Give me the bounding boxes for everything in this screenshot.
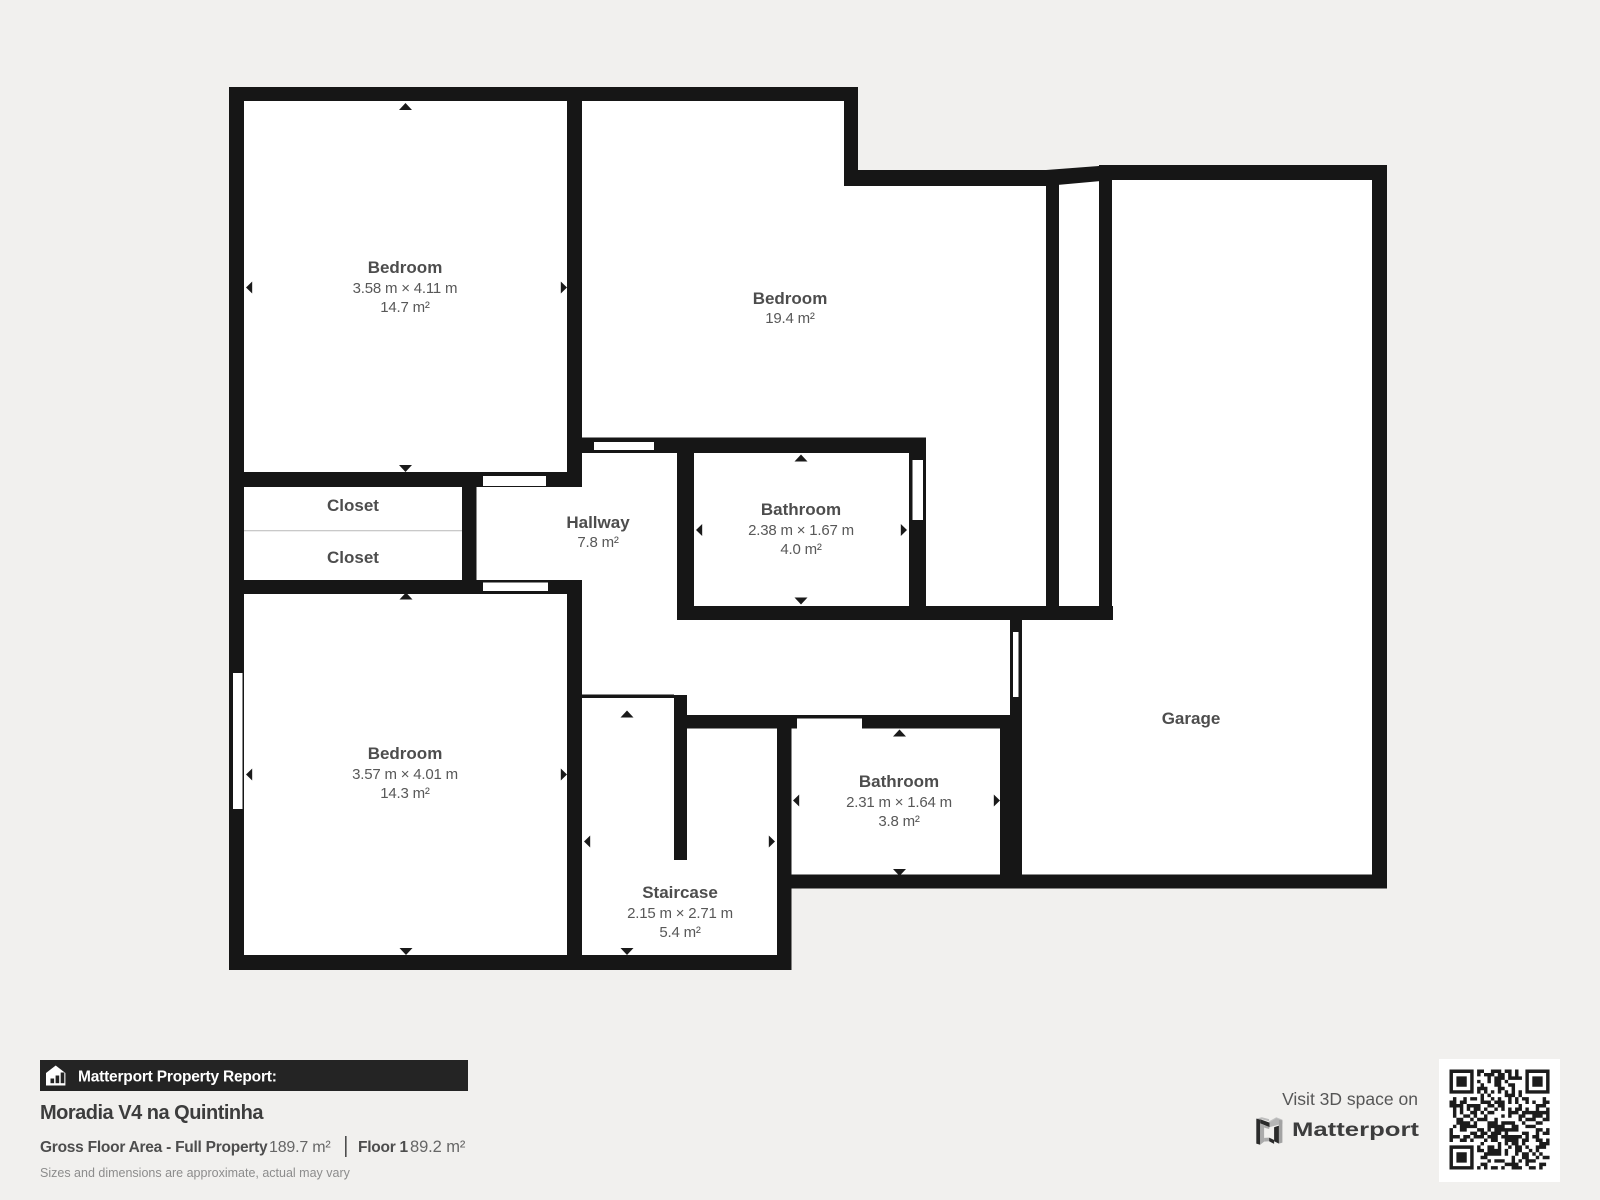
svg-text:4.0 m²: 4.0 m² — [780, 541, 822, 558]
svg-text:Matterport Property Report:: Matterport Property Report: — [78, 1069, 277, 1086]
svg-text:Bedroom: Bedroom — [368, 744, 443, 763]
svg-text:Hallway: Hallway — [566, 513, 630, 532]
svg-text:189.7 m²: 189.7 m² — [269, 1139, 331, 1156]
svg-text:Moradia V4 na Quintinha: Moradia V4 na Quintinha — [40, 1102, 264, 1124]
svg-text:Visit 3D space on: Visit 3D space on — [1282, 1089, 1418, 1109]
svg-text:2.31 m × 1.64 m: 2.31 m × 1.64 m — [846, 794, 952, 811]
svg-text:Gross Floor Area - Full Proper: Gross Floor Area - Full Property — [40, 1139, 268, 1156]
svg-text:Garage: Garage — [1162, 709, 1221, 728]
svg-text:Matterport: Matterport — [1292, 1119, 1420, 1141]
svg-text:Bathroom: Bathroom — [859, 772, 939, 791]
svg-text:Bedroom: Bedroom — [753, 289, 828, 308]
svg-text:3.57 m × 4.01 m: 3.57 m × 4.01 m — [352, 766, 458, 783]
svg-text:89.2 m²: 89.2 m² — [410, 1138, 466, 1156]
svg-text:Closet: Closet — [327, 496, 379, 515]
svg-text:Closet: Closet — [327, 548, 379, 567]
svg-text:14.3 m²: 14.3 m² — [380, 785, 430, 802]
svg-text:3.58 m × 4.11 m: 3.58 m × 4.11 m — [353, 280, 458, 297]
svg-text:Staircase: Staircase — [642, 883, 718, 902]
svg-text:7.8 m²: 7.8 m² — [577, 534, 619, 551]
svg-text:Floor 1: Floor 1 — [358, 1139, 409, 1156]
svg-text:Bathroom: Bathroom — [761, 500, 841, 519]
svg-text:19.4 m²: 19.4 m² — [765, 310, 815, 327]
svg-text:3.8 m²: 3.8 m² — [878, 813, 920, 830]
svg-text:14.7 m²: 14.7 m² — [380, 299, 430, 316]
svg-text:Bedroom: Bedroom — [368, 258, 443, 277]
svg-text:Sizes and dimensions are appro: Sizes and dimensions are approximate, ac… — [40, 1166, 351, 1180]
svg-text:2.38 m × 1.67 m: 2.38 m × 1.67 m — [748, 522, 854, 539]
svg-text:2.15 m × 2.71 m: 2.15 m × 2.71 m — [627, 905, 733, 922]
svg-text:5.4 m²: 5.4 m² — [659, 924, 701, 941]
